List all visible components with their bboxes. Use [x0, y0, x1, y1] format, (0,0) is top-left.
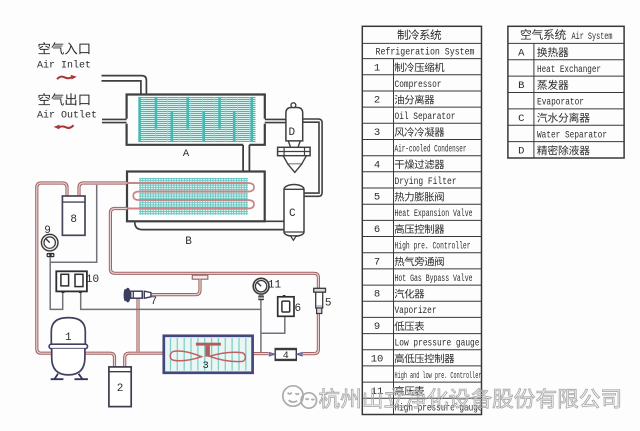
svg-text:D: D — [518, 146, 524, 158]
svg-text:Heat Expansion Valve: Heat Expansion Valve — [395, 208, 473, 220]
svg-text:A: A — [183, 148, 190, 160]
svg-text:2: 2 — [374, 95, 380, 107]
svg-text:Refrigeration System: Refrigeration System — [376, 46, 475, 58]
svg-text:Heat Exchanger: Heat Exchanger — [537, 64, 601, 76]
svg-text:7: 7 — [150, 296, 157, 308]
svg-text:6: 6 — [374, 224, 380, 236]
svg-text:Compressor: Compressor — [395, 80, 442, 91]
svg-text:10: 10 — [86, 274, 99, 286]
svg-text:Evaporator: Evaporator — [537, 98, 584, 109]
svg-text:Air Outlet: Air Outlet — [37, 110, 97, 122]
svg-text:10: 10 — [371, 353, 384, 365]
svg-text:A: A — [518, 47, 525, 59]
svg-text:1: 1 — [65, 332, 72, 344]
svg-text:Air-cooled Condenser: Air-cooled Condenser — [395, 144, 467, 156]
svg-text:2: 2 — [117, 383, 124, 395]
svg-text:D: D — [288, 127, 295, 139]
svg-text:C: C — [518, 113, 524, 125]
svg-text:9: 9 — [374, 321, 380, 333]
svg-text:B: B — [518, 80, 524, 92]
svg-text:Drying Filter: Drying Filter — [395, 176, 457, 188]
svg-text:Air Inlet: Air Inlet — [37, 60, 91, 72]
svg-text:5: 5 — [325, 298, 332, 310]
svg-text:B: B — [185, 236, 192, 248]
svg-text:High pre. Controller: High pre. Controller — [395, 241, 471, 253]
svg-text:Oil Separator: Oil Separator — [395, 111, 456, 123]
svg-text:Water Separator: Water Separator — [537, 130, 607, 141]
svg-text:8: 8 — [70, 214, 77, 226]
svg-text:3: 3 — [203, 360, 209, 372]
svg-text:7: 7 — [374, 256, 380, 268]
svg-text:8: 8 — [374, 289, 380, 301]
svg-text:High and low pre. Controller: High and low pre. Controller — [395, 370, 482, 381]
svg-text:11: 11 — [268, 280, 282, 292]
svg-text:3: 3 — [374, 127, 380, 139]
svg-text:Vaporizer: Vaporizer — [395, 305, 437, 317]
svg-text:5: 5 — [374, 192, 380, 204]
svg-text:4: 4 — [374, 159, 380, 171]
svg-text:1: 1 — [374, 62, 380, 74]
svg-text:Air System: Air System — [572, 31, 613, 43]
svg-text:C: C — [289, 208, 296, 220]
svg-text:4: 4 — [283, 351, 289, 362]
svg-text:6: 6 — [294, 303, 301, 315]
svg-text:Hot Gas Bypass Valve: Hot Gas Bypass Valve — [395, 273, 473, 285]
svg-text:Low pressure gauge: Low pressure gauge — [395, 339, 480, 350]
svg-text:9: 9 — [44, 225, 51, 237]
